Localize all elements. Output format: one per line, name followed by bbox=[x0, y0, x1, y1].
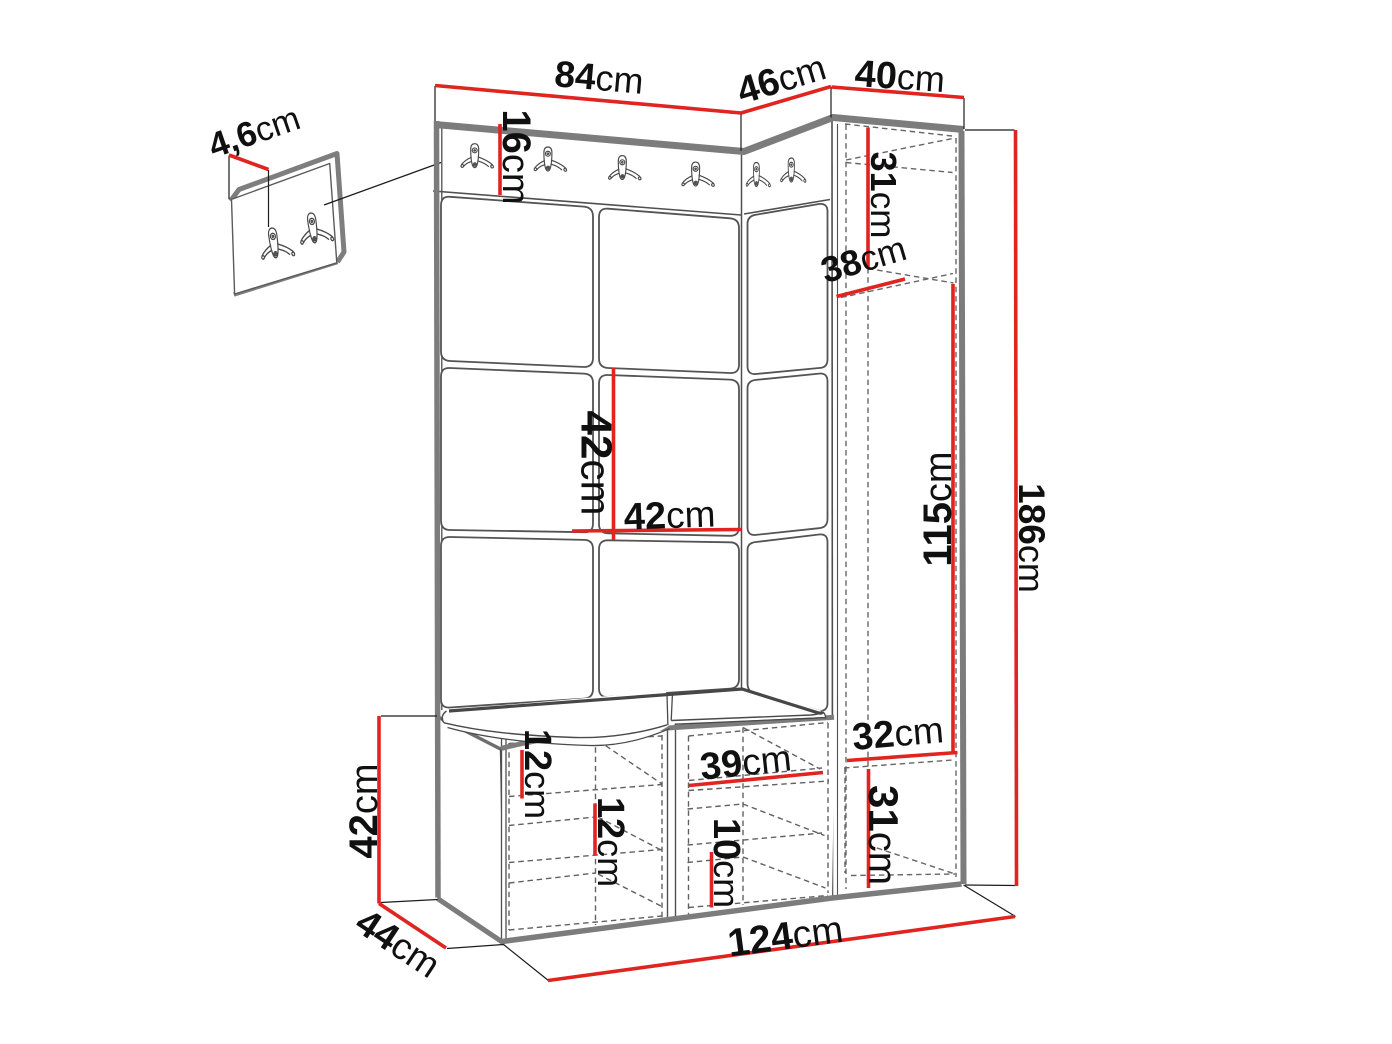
svg-text:42cm: 42cm bbox=[342, 763, 386, 858]
svg-text:12cm: 12cm bbox=[589, 797, 631, 887]
svg-text:84cm: 84cm bbox=[553, 53, 645, 102]
svg-text:10cm: 10cm bbox=[705, 818, 747, 908]
svg-text:186cm: 186cm bbox=[1011, 483, 1052, 593]
svg-text:31cm: 31cm bbox=[860, 785, 907, 885]
svg-text:16cm: 16cm bbox=[494, 109, 538, 204]
svg-text:42cm: 42cm bbox=[623, 493, 716, 538]
svg-text:42cm: 42cm bbox=[572, 411, 621, 516]
svg-text:40cm: 40cm bbox=[853, 53, 946, 101]
svg-text:12cm: 12cm bbox=[516, 729, 558, 819]
svg-text:31cm: 31cm bbox=[863, 152, 904, 239]
svg-text:115cm: 115cm bbox=[916, 451, 960, 566]
